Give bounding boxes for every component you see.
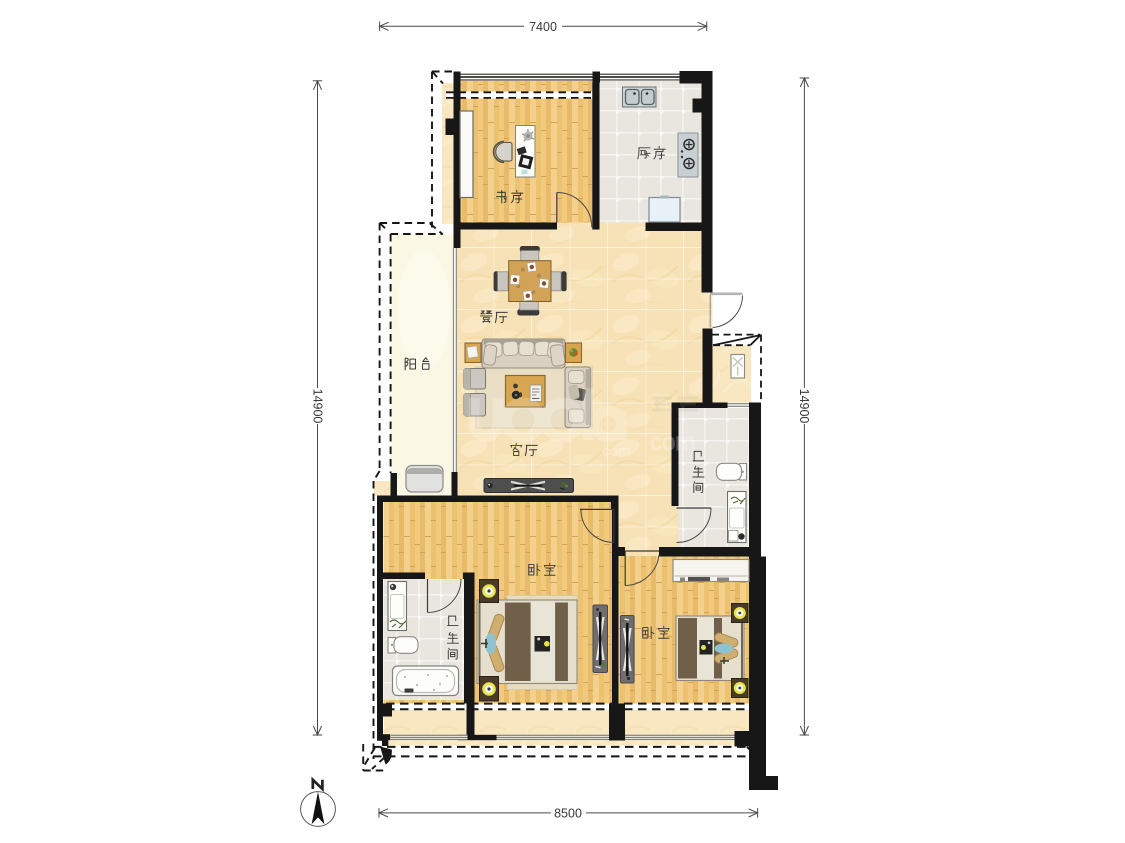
svg-text:8500: 8500 xyxy=(554,806,582,820)
svg-text:14900: 14900 xyxy=(310,389,324,424)
svg-text:7400: 7400 xyxy=(529,20,557,34)
svg-text:com: com xyxy=(650,429,695,456)
svg-text:14900: 14900 xyxy=(797,389,811,424)
svg-text:.com: .com xyxy=(598,443,631,460)
